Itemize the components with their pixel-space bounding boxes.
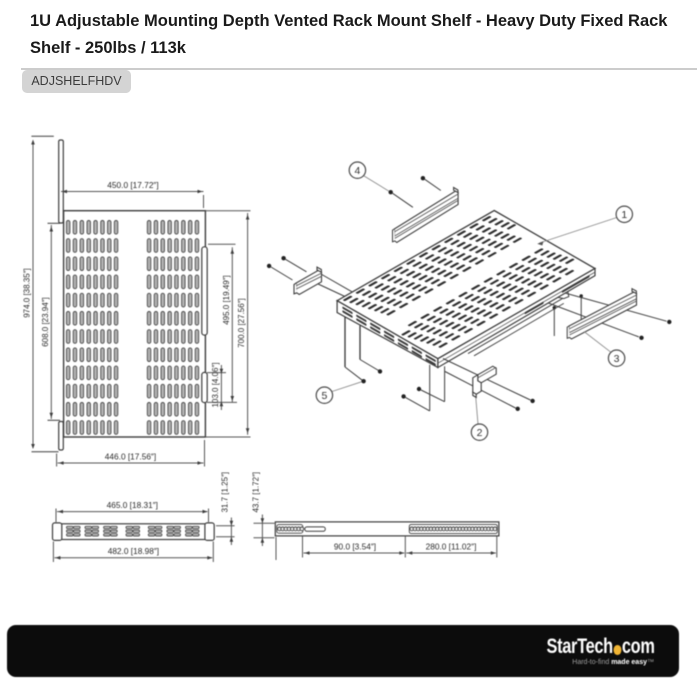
svg-text:495.0 [19.49″]: 495.0 [19.49″] (222, 275, 231, 325)
svg-text:446.0 [17.56″]: 446.0 [17.56″] (105, 452, 156, 462)
svg-text:31.7 [1.25″]: 31.7 [1.25″] (221, 472, 230, 513)
svg-text:103.0 [4.06″]: 103.0 [4.06″] (211, 362, 220, 407)
svg-text:465.0 [18.31″]: 465.0 [18.31″] (107, 500, 158, 510)
svg-text:482.0 [18.98″]: 482.0 [18.98″] (108, 546, 159, 556)
svg-text:974.0 [38.35″]: 974.0 [38.35″] (23, 268, 32, 318)
svg-text:700.0 [27.56″]: 700.0 [27.56″] (237, 298, 246, 348)
svg-text:3: 3 (614, 353, 620, 365)
svg-text:4: 4 (354, 165, 360, 177)
svg-text:90.0 [3.54″]: 90.0 [3.54″] (334, 542, 376, 552)
svg-text:5: 5 (321, 390, 327, 402)
svg-text:43.7 [1.72″]: 43.7 [1.72″] (252, 472, 261, 513)
svg-text:608.0 [23.94″]: 608.0 [23.94″] (41, 297, 50, 347)
svg-text:280.0 [11.02″]: 280.0 [11.02″] (426, 542, 477, 552)
svg-text:2: 2 (477, 427, 483, 439)
svg-text:450.0 [17.72″]: 450.0 [17.72″] (107, 180, 158, 190)
svg-text:1: 1 (621, 209, 627, 221)
